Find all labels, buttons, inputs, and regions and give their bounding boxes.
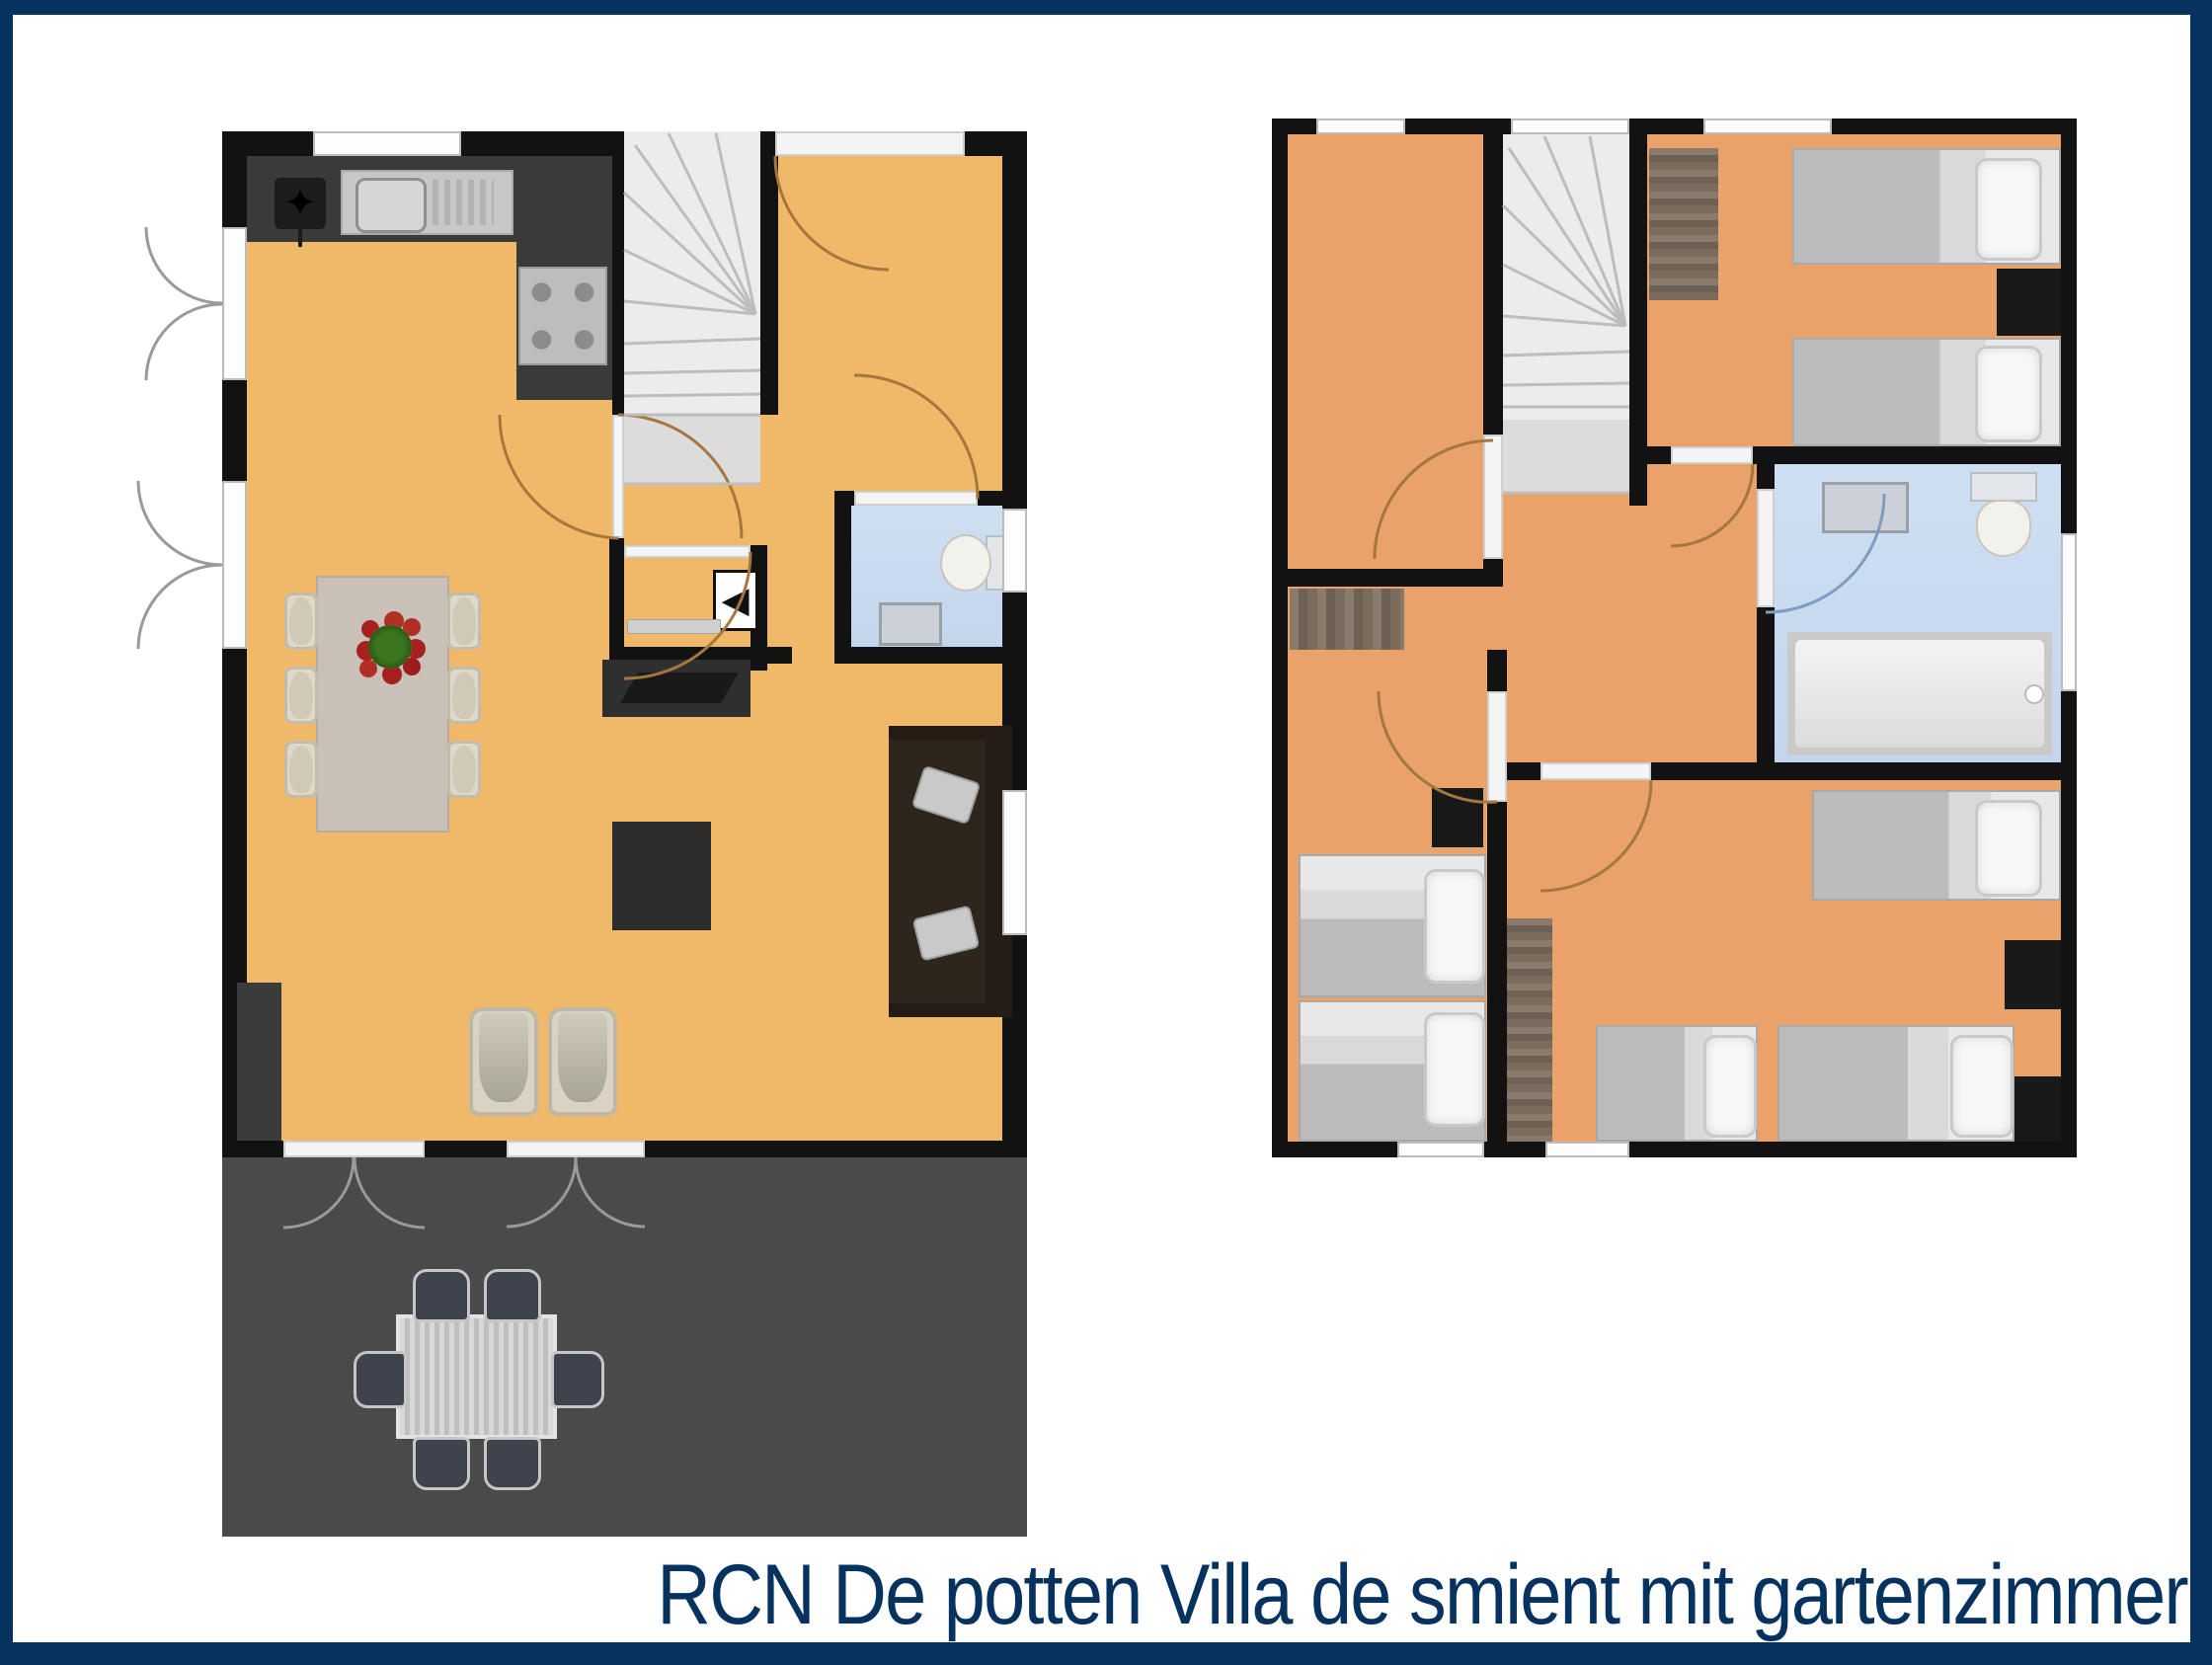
door-arc	[624, 552, 750, 678]
floor-plan-upper	[1272, 119, 2077, 1157]
door-arc	[618, 415, 742, 538]
floorplan-page: ✦ ◀	[0, 0, 2212, 1665]
door-arc	[355, 1157, 425, 1228]
door-arc	[1540, 780, 1651, 891]
door-arc	[146, 304, 222, 380]
door-arc	[138, 481, 222, 565]
stair-treads	[1503, 136, 1629, 493]
caption-title: RCN De potten Villa de smient mit garten…	[657, 1546, 2187, 1644]
door-arc	[146, 227, 222, 303]
door-arcs-layer-ground	[222, 131, 1027, 1537]
door-arc	[854, 375, 978, 499]
door-arc	[500, 415, 618, 538]
door-arc	[1671, 464, 1753, 546]
door-arc	[1766, 494, 1884, 612]
door-arcs-layer-upper	[1272, 119, 2077, 1157]
floor-plan-ground: ✦ ◀	[222, 131, 1027, 1537]
stair-treads	[624, 133, 760, 484]
door-arc	[138, 565, 222, 649]
door-arc	[576, 1157, 645, 1227]
door-arc	[283, 1157, 354, 1228]
door-arc	[775, 156, 889, 270]
door-arc	[1379, 691, 1497, 802]
door-arc	[1375, 440, 1493, 559]
door-arc	[507, 1157, 576, 1227]
